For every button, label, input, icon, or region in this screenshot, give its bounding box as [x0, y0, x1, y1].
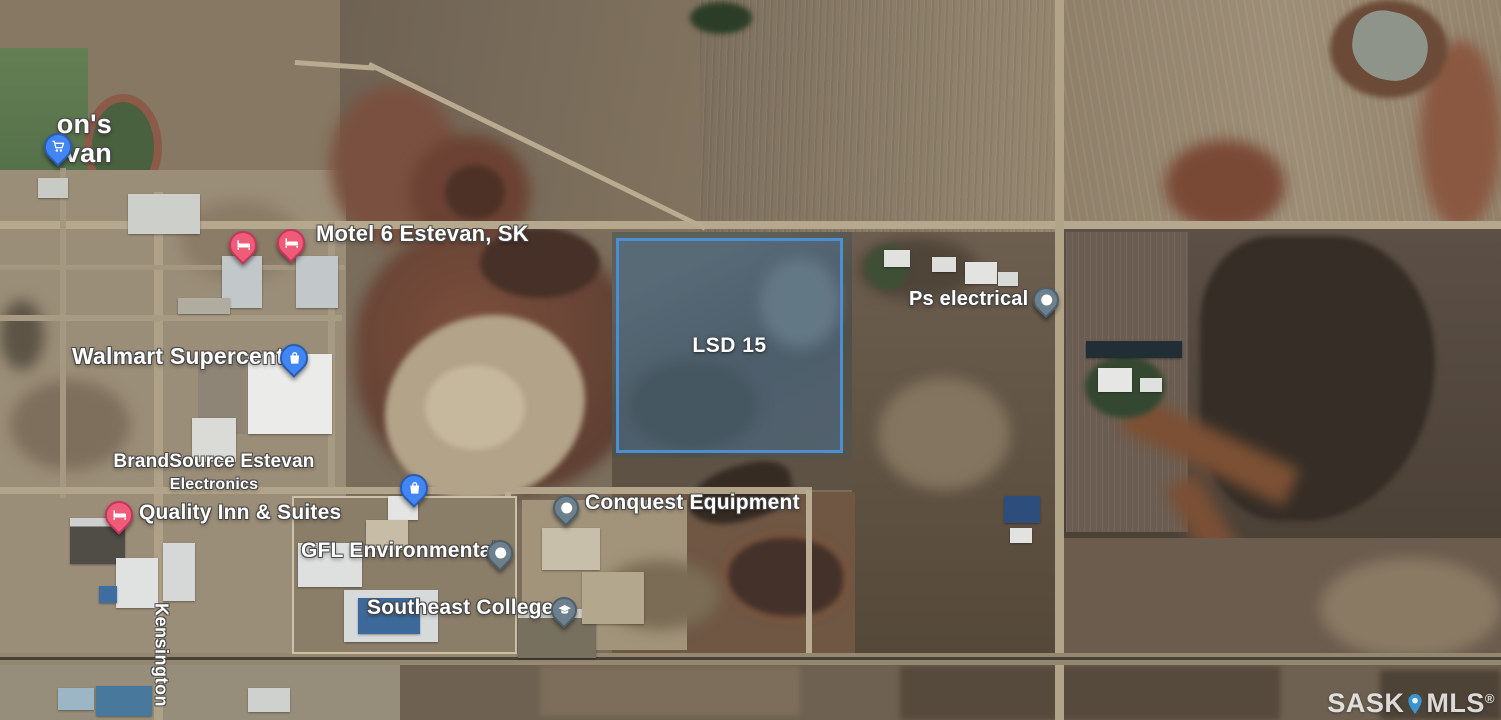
motel6-label[interactable]: Motel 6 Estevan, SK: [316, 223, 529, 245]
graduation-cap-icon: [557, 603, 572, 618]
shopping-bag-icon: [287, 351, 302, 366]
walmart-label[interactable]: Walmart Supercentre: [72, 345, 306, 368]
satellite-map[interactable]: LSD 15: [0, 0, 1501, 720]
parcel-boundary-lsd15: LSD 15: [616, 238, 843, 453]
shopping-cart-icon: [51, 140, 66, 155]
ps-electrical-label[interactable]: Ps electrical: [909, 289, 1028, 309]
east-west-road: [0, 221, 1501, 229]
hotel-bed-icon: [236, 238, 251, 253]
shopping-bag-icon: [407, 481, 422, 496]
circle-icon: [1041, 295, 1052, 306]
conquest-label[interactable]: Conquest Equipment: [585, 492, 800, 513]
gfl-label[interactable]: GFL Environmental: [301, 540, 498, 561]
quality-inn-label[interactable]: Quality Inn & Suites: [139, 502, 341, 523]
brandsource-label[interactable]: BrandSource Estevan Electronics: [108, 452, 320, 493]
watermark-text-left: SASK: [1327, 688, 1404, 719]
watermark-text-right: MLS: [1426, 688, 1485, 719]
saskmls-watermark: SASK MLS ®: [1327, 688, 1495, 719]
circle-icon: [495, 548, 506, 559]
circle-icon: [561, 503, 572, 514]
saskmls-pin-icon: [1405, 691, 1425, 717]
southeast-college-label[interactable]: Southeast College: [367, 597, 554, 618]
kensington-road-label: Kensington: [151, 603, 172, 707]
north-south-road-east: [1055, 0, 1064, 720]
parcel-label: LSD 15: [692, 334, 766, 358]
hotel-bed-icon: [284, 236, 299, 251]
watermark-registered-mark: ®: [1485, 691, 1495, 706]
hotel-bed-icon: [112, 508, 127, 523]
